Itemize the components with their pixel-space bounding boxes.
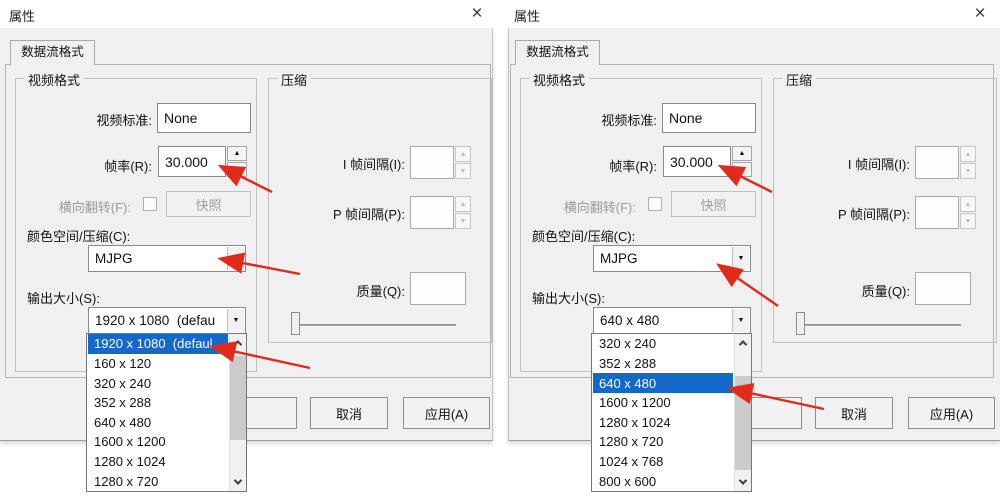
flip-label: 横向翻转(F): — [533, 197, 636, 216]
frame-rate-label: 帧率(R): — [545, 156, 657, 175]
close-icon[interactable]: × — [466, 2, 488, 26]
i-frame-interval-field — [410, 146, 454, 179]
spinner-down-icon[interactable]: ▼ — [732, 162, 752, 177]
i-frame-interval-stepper: ▲ ▼ — [455, 146, 471, 179]
video-standard-label: 视频标准: — [545, 110, 657, 129]
spinner-up-icon: ▲ — [455, 146, 471, 162]
cancel-button[interactable]: 取消 — [815, 397, 893, 429]
list-item[interactable]: 1280 x 1024 — [593, 413, 733, 433]
spinner-up-icon: ▲ — [960, 146, 976, 162]
tab-stream-format[interactable]: 数据流格式 — [10, 40, 95, 65]
list-item[interactable]: 1280 x 720 — [88, 471, 228, 491]
spinner-up-icon[interactable]: ▲ — [227, 146, 247, 161]
titlebar: 属性 × — [0, 0, 497, 28]
p-frame-interval-stepper: ▲ ▼ — [455, 196, 471, 229]
frame-rate-stepper[interactable]: ▲ ▼ — [227, 146, 247, 177]
chevron-down-icon[interactable]: ▼ — [732, 247, 749, 270]
output-size-combobox[interactable]: 1920 x 1080 (defau ▼ — [88, 307, 246, 334]
quality-slider-track — [299, 324, 456, 326]
output-size-label: 输出大小(S): — [532, 288, 605, 307]
output-size-value: 640 x 480 — [600, 308, 730, 333]
compression-group-label: 压缩 — [782, 70, 816, 89]
i-frame-interval-stepper: ▲ ▼ — [960, 146, 976, 179]
quality-slider-thumb[interactable] — [796, 312, 805, 335]
titlebar: 属性 × — [505, 0, 1000, 28]
scrollbar-thumb[interactable] — [230, 356, 246, 440]
spinner-up-icon: ▲ — [455, 196, 471, 212]
quality-field — [915, 272, 971, 305]
quality-label: 质量(Q): — [800, 281, 910, 300]
color-space-label: 颜色空间/压缩(C): — [532, 226, 635, 245]
close-icon[interactable]: × — [969, 2, 991, 26]
i-frame-interval-label: I 帧间隔(I): — [800, 154, 910, 173]
flip-label: 横向翻转(F): — [28, 197, 131, 216]
output-size-dropdown-list: 320 x 240 352 x 288 640 x 480 1600 x 120… — [591, 333, 752, 492]
list-item[interactable]: 352 x 288 — [593, 354, 733, 374]
quality-field — [410, 272, 466, 305]
cancel-button[interactable]: 取消 — [310, 397, 388, 429]
window-title: 属性 — [9, 6, 35, 25]
list-item[interactable]: 352 x 288 — [88, 393, 228, 413]
video-standard-label: 视频标准: — [40, 110, 152, 129]
quality-slider-track — [804, 324, 961, 326]
p-frame-interval-field — [410, 196, 454, 229]
p-frame-interval-label: P 帧间隔(P): — [295, 204, 405, 223]
spinner-down-icon: ▼ — [960, 213, 976, 229]
chevron-down-icon[interactable]: ▼ — [227, 247, 244, 270]
dropdown-items: 320 x 240 352 x 288 640 x 480 1600 x 120… — [593, 334, 733, 491]
p-frame-interval-field — [915, 196, 959, 229]
frame-rate-stepper[interactable]: ▲ ▼ — [732, 146, 752, 177]
spinner-up-icon: ▲ — [960, 196, 976, 212]
frame-rate-field[interactable]: 30.000 — [663, 146, 731, 177]
window-title: 属性 — [514, 6, 540, 25]
color-space-value: MJPG — [95, 246, 225, 271]
properties-window-right: 属性 × 数据流格式 视频格式 视频标准: None 帧率(R): 30.000… — [505, 0, 1000, 500]
output-size-dropdown-list: 1920 x 1080 (defaul 160 x 120 320 x 240 … — [86, 333, 247, 492]
video-standard-field[interactable]: None — [157, 103, 251, 133]
video-format-group-label: 视频格式 — [24, 70, 84, 89]
spinner-down-icon: ▼ — [455, 213, 471, 229]
quality-slider-thumb[interactable] — [291, 312, 300, 335]
video-standard-field[interactable]: None — [662, 103, 756, 133]
scroll-up-icon[interactable] — [735, 335, 751, 351]
page: 属性 × 数据流格式 视频格式 视频标准: None 帧率(R): 30.000… — [0, 0, 1000, 500]
spinner-up-icon[interactable]: ▲ — [732, 146, 752, 161]
quality-label: 质量(Q): — [295, 281, 405, 300]
tab-stream-format[interactable]: 数据流格式 — [515, 40, 600, 65]
i-frame-interval-label: I 帧间隔(I): — [295, 154, 405, 173]
frame-rate-field[interactable]: 30.000 — [158, 146, 226, 177]
list-item[interactable]: 1024 x 768 — [593, 452, 733, 472]
p-frame-interval-label: P 帧间隔(P): — [800, 204, 910, 223]
color-space-label: 颜色空间/压缩(C): — [27, 226, 130, 245]
apply-button[interactable]: 应用(A) — [403, 397, 490, 429]
frame-rate-label: 帧率(R): — [40, 156, 152, 175]
list-item[interactable]: 160 x 120 — [88, 354, 228, 374]
dropdown-items: 1920 x 1080 (defaul 160 x 120 320 x 240 … — [88, 334, 228, 491]
color-space-combobox[interactable]: MJPG ▼ — [593, 245, 751, 272]
list-item[interactable]: 1600 x 1200 — [593, 393, 733, 413]
list-item[interactable]: 640 x 480 — [88, 413, 228, 433]
list-item[interactable]: 800 x 600 — [593, 471, 733, 491]
spinner-down-icon: ▼ — [455, 163, 471, 179]
spinner-down-icon[interactable]: ▼ — [227, 162, 247, 177]
list-item[interactable]: 1280 x 1024 — [88, 452, 228, 472]
list-item[interactable]: 1600 x 1200 — [88, 432, 228, 452]
output-size-label: 输出大小(S): — [27, 288, 100, 307]
scroll-down-icon[interactable] — [230, 474, 246, 490]
spinner-down-icon: ▼ — [960, 163, 976, 179]
apply-button[interactable]: 应用(A) — [908, 397, 995, 429]
properties-window-left: 属性 × 数据流格式 视频格式 视频标准: None 帧率(R): 30.000… — [0, 0, 497, 500]
chevron-down-icon[interactable]: ▼ — [227, 309, 244, 332]
p-frame-interval-stepper: ▲ ▼ — [960, 196, 976, 229]
dropdown-scrollbar[interactable] — [229, 334, 246, 491]
list-item[interactable]: 320 x 240 — [593, 334, 733, 354]
output-size-value: 1920 x 1080 (defau — [95, 308, 225, 333]
flip-checkbox — [143, 197, 157, 211]
color-space-value: MJPG — [600, 246, 730, 271]
scroll-up-icon[interactable] — [230, 335, 246, 351]
scroll-down-icon[interactable] — [735, 474, 751, 490]
snapshot-button: 快照 — [166, 191, 251, 217]
compression-group-label: 压缩 — [277, 70, 311, 89]
list-item[interactable]: 640 x 480 — [593, 373, 733, 393]
flip-checkbox — [648, 197, 662, 211]
output-size-combobox[interactable]: 640 x 480 ▼ — [593, 307, 751, 334]
list-item[interactable]: 1280 x 720 — [593, 432, 733, 452]
video-format-group-label: 视频格式 — [529, 70, 589, 89]
chevron-down-icon[interactable]: ▼ — [732, 309, 749, 332]
list-item[interactable]: 320 x 240 — [88, 373, 228, 393]
snapshot-button: 快照 — [671, 191, 756, 217]
i-frame-interval-field — [915, 146, 959, 179]
color-space-combobox[interactable]: MJPG ▼ — [88, 245, 246, 272]
scrollbar-thumb[interactable] — [735, 376, 751, 470]
list-item[interactable]: 1920 x 1080 (defaul — [88, 334, 228, 354]
dropdown-scrollbar[interactable] — [734, 334, 751, 491]
